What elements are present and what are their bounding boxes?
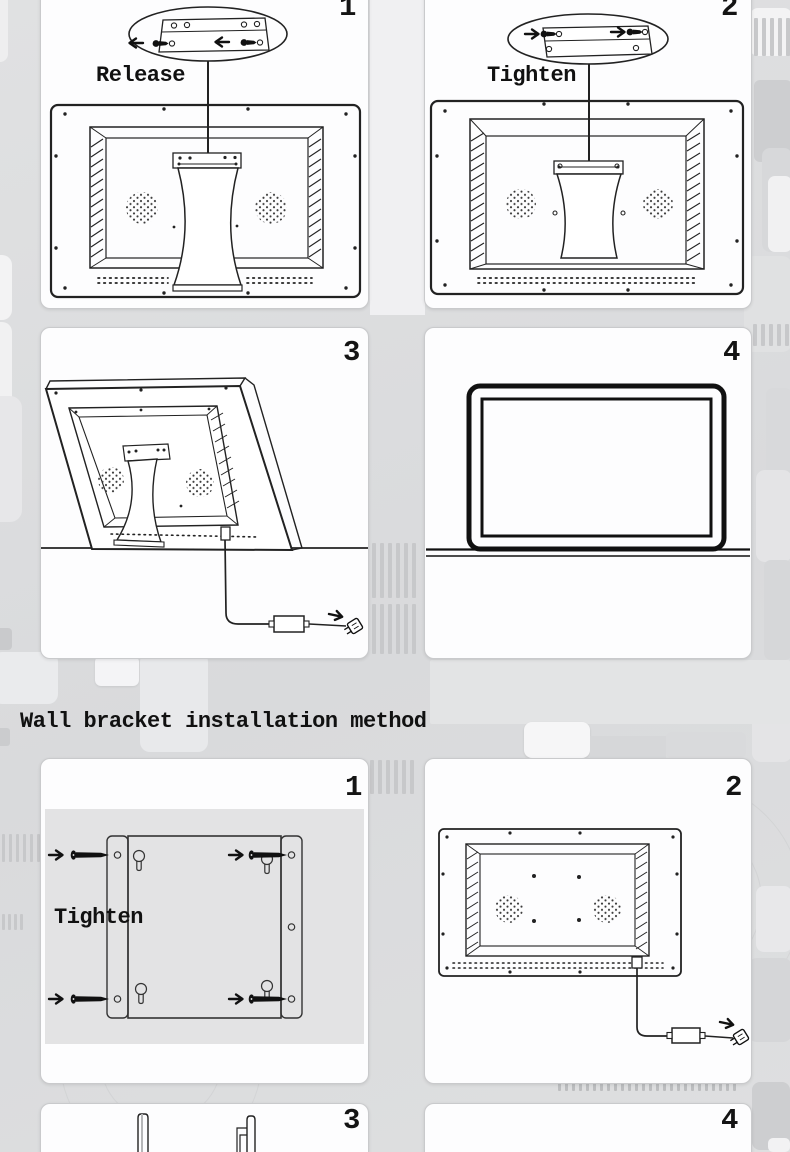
ribbed-stripes-decoration <box>370 760 414 794</box>
speaker-grille <box>643 189 673 219</box>
vent-hatching <box>467 852 478 949</box>
panel-wall-step-2: 2 <box>424 758 752 1084</box>
step-number: 2 <box>725 773 742 802</box>
speaker-grille <box>186 469 214 497</box>
monitor-front-on-desk-diagram <box>425 328 751 658</box>
panel-desktop-step-1: Release 1 <box>40 0 369 309</box>
background-shape <box>748 958 790 1042</box>
background-shape <box>764 560 790 660</box>
step-number: 3 <box>343 338 360 367</box>
monitor-side-view-diagram <box>41 1104 368 1152</box>
wall-bracket-section-title: Wall bracket installation method <box>20 709 426 734</box>
panel-wall-step-4: 4 <box>424 1103 752 1152</box>
installation-manual-page: Release 1 <box>0 0 790 1152</box>
background-shape <box>666 732 746 758</box>
power-plug-icon <box>342 618 363 637</box>
tighten-label: Tighten <box>487 63 576 88</box>
background-shape <box>0 728 10 746</box>
background-shape <box>140 652 208 752</box>
background-shape <box>430 660 790 724</box>
ribbed-stripes-decoration <box>372 604 416 654</box>
background-shape <box>95 656 139 686</box>
speaker-grille <box>126 192 158 224</box>
power-cable <box>309 624 346 626</box>
background-shape <box>768 176 790 252</box>
speaker-grille <box>593 895 621 923</box>
monitor-on-desk-cable-diagram <box>41 328 368 658</box>
background-shape <box>0 652 58 704</box>
tighten-label: Tighten <box>54 905 143 930</box>
background-shape <box>524 722 590 758</box>
ribbed-stripes-decoration <box>754 18 790 56</box>
monitor-screen <box>482 399 711 536</box>
panel-desktop-step-3: 3 <box>40 327 369 659</box>
speaker-grille <box>495 895 523 923</box>
monitor-back-stand-release-diagram <box>41 0 368 308</box>
background-shape <box>0 396 22 522</box>
background-shape <box>768 1138 790 1152</box>
step-number: 3 <box>343 1106 360 1135</box>
speaker-grille <box>255 192 287 224</box>
monitor-back-stand-tighten-diagram <box>425 0 751 308</box>
power-adapter <box>274 616 304 632</box>
stand-column <box>174 168 241 285</box>
step-number: 4 <box>723 338 740 367</box>
background-shape <box>0 628 12 650</box>
power-connector <box>221 527 230 540</box>
ribbed-stripes-decoration <box>372 543 416 598</box>
ribbed-stripes-decoration <box>2 914 23 930</box>
background-shape <box>590 736 666 758</box>
arrow-right-icon <box>719 1018 734 1030</box>
background-shape <box>756 886 790 952</box>
bottom-vent-dots <box>478 278 696 283</box>
arrow-right-icon <box>328 610 343 622</box>
panel-desktop-step-4: 4 <box>424 327 752 659</box>
panel-wall-step-1: Tighten 1 <box>40 758 369 1084</box>
vent-hatching <box>687 133 700 261</box>
power-cable <box>705 1036 733 1038</box>
step-number: 2 <box>721 0 738 22</box>
monitor-bezel <box>469 386 724 549</box>
release-label: Release <box>96 63 185 88</box>
step-number: 4 <box>721 1106 738 1135</box>
step-number: 1 <box>345 773 362 802</box>
vent-hatching <box>471 133 484 261</box>
power-adapter <box>672 1028 700 1043</box>
background-shape <box>0 0 8 62</box>
power-cable <box>637 968 672 1036</box>
background-shape <box>0 255 12 320</box>
vent-hatching <box>91 139 103 257</box>
vent-hatching <box>309 139 321 257</box>
arrow-right-icon <box>525 30 539 39</box>
step-number: 1 <box>339 0 356 22</box>
background-shape <box>369 0 426 315</box>
speaker-grille <box>98 467 124 493</box>
power-cable <box>225 540 274 624</box>
background-shape <box>766 388 790 474</box>
panel-desktop-step-2: Tighten 2 <box>424 0 752 309</box>
vent-hatching <box>636 852 647 949</box>
speaker-grille <box>506 189 536 219</box>
background-shape <box>756 470 790 562</box>
monitor-back-flat-cable-diagram <box>425 759 751 1083</box>
panel-wall-step-3: 3 <box>40 1103 369 1152</box>
wall-bracket-side <box>237 1128 247 1152</box>
ribbed-stripes-decoration <box>753 324 790 346</box>
mount-bracket <box>557 174 621 258</box>
power-connector <box>632 957 642 968</box>
